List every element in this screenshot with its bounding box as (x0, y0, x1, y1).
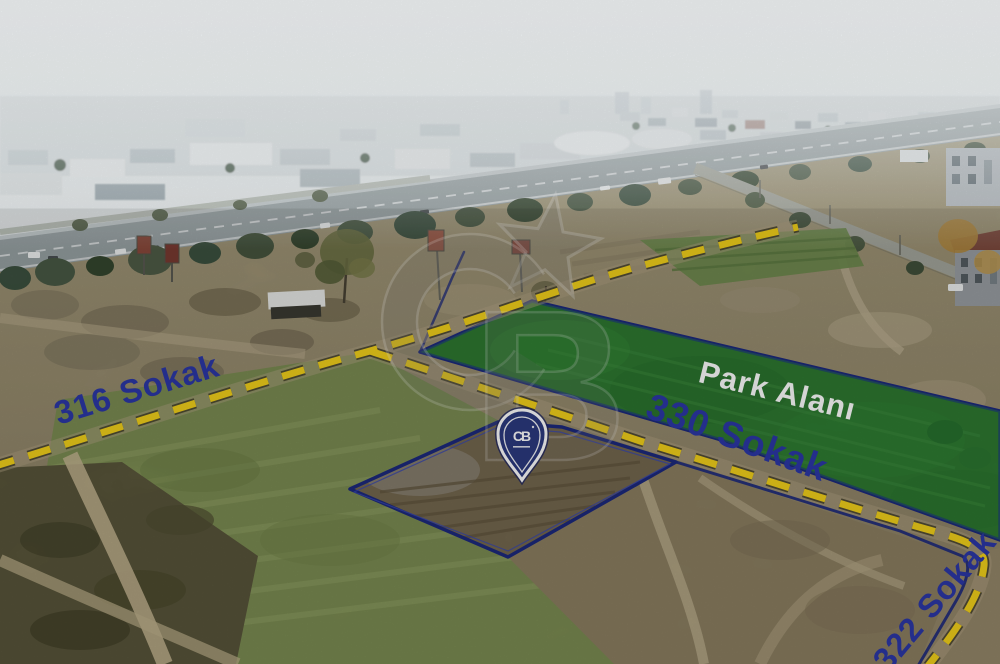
photo-grain (0, 0, 1000, 664)
aerial-photo: C B 316 Sokak Park Alanı 330 Sokak 322 S… (0, 0, 1000, 664)
